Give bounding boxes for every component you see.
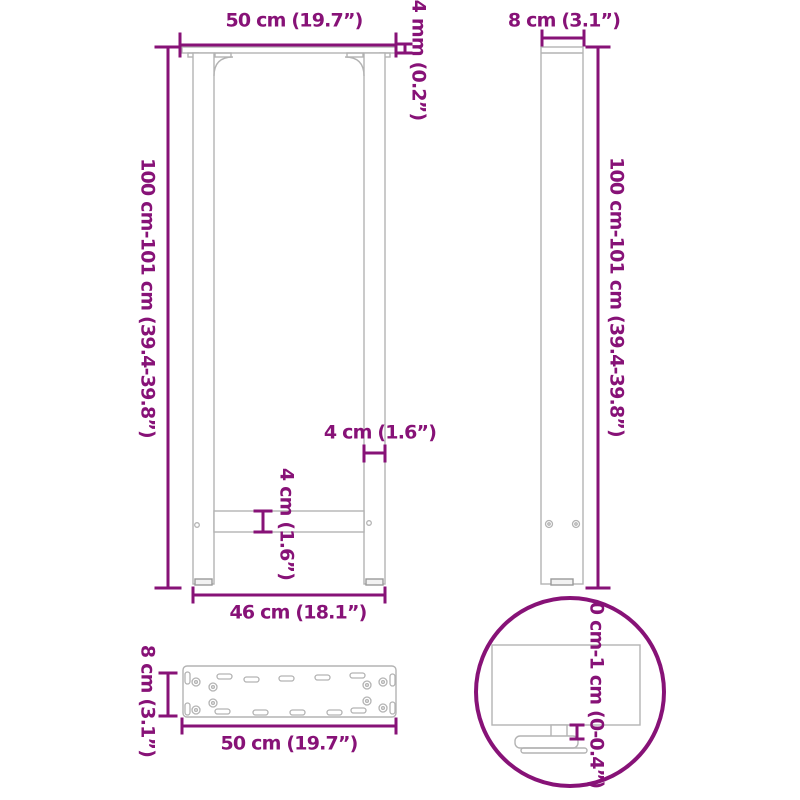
detail-foot-base [515, 736, 578, 748]
dim-line-front-bottom-width [193, 588, 385, 602]
dim-label-crossbar-height: 4 cm (1.6”) [277, 468, 296, 580]
dim-label-leg-tube-width: 4 cm (1.6”) [324, 424, 436, 443]
dim-line-plate-depth [160, 673, 176, 716]
dim-label-plate-thickness: 4 mm (0.2”) [409, 0, 428, 120]
front-right-leg [364, 53, 385, 584]
dim-line-side-depth [542, 31, 584, 45]
detail-leg-bottom [492, 645, 640, 725]
side-leg [541, 47, 583, 584]
dim-label-plate-width: 50 cm (19.7”) [220, 735, 357, 754]
dim-label-plate-depth: 8 cm (3.1”) [138, 645, 157, 757]
dim-label-side-height: 100 cm-101 cm (39.4-39.8”) [607, 157, 626, 437]
dim-label-front-bottom-width: 46 cm (18.1”) [229, 604, 366, 623]
dim-label-height-adjustment: 0 cm-1 cm (0-0.4”) [587, 602, 606, 789]
dim-line-plate-width [182, 719, 396, 733]
dim-label-side-depth: 8 cm (3.1”) [508, 12, 620, 31]
side-view-drawing [541, 47, 583, 585]
front-top-plate [182, 47, 396, 53]
diagram-line-art [0, 0, 800, 800]
detail-foot-stem [551, 725, 567, 737]
dim-label-front-height: 100 cm-101 cm (39.4-39.8”) [138, 158, 157, 438]
dimension-diagram: 50 cm (19.7”) 4 mm (0.2”) 8 cm (3.1”) 10… [0, 0, 800, 800]
dim-line-front-height [156, 47, 180, 588]
detail-callout-drawing [476, 598, 664, 786]
plate-top-view-drawing [183, 666, 396, 717]
front-left-leg [193, 53, 214, 584]
dim-label-front-top-width: 50 cm (19.7”) [225, 12, 362, 31]
